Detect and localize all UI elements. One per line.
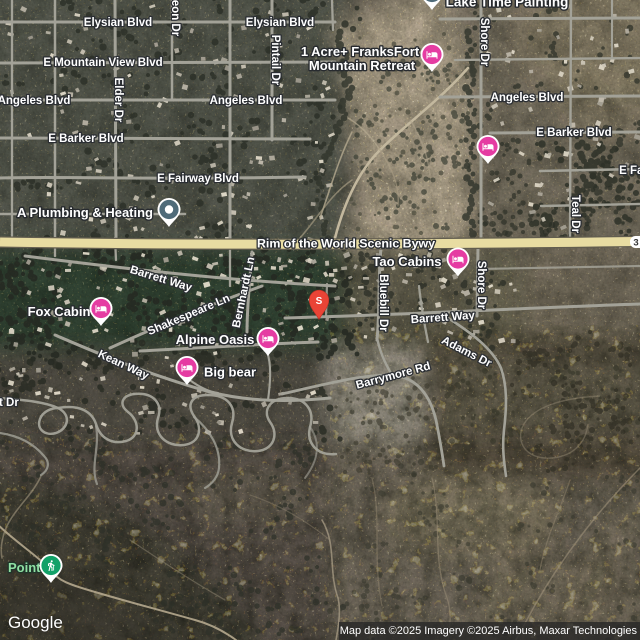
svg-text:Pintail Dr: Pintail Dr bbox=[269, 35, 281, 86]
svg-text:E Mountain View Blvd: E Mountain View Blvd bbox=[43, 57, 162, 69]
svg-text:Angeles Blvd: Angeles Blvd bbox=[210, 95, 283, 107]
svg-text:Angeles Blvd: Angeles Blvd bbox=[0, 95, 70, 107]
svg-text:Teal Dr: Teal Dr bbox=[569, 195, 581, 234]
svg-text:Elder Dr: Elder Dr bbox=[112, 78, 124, 123]
svg-text:A Plumbing & Heating: A Plumbing & Heating bbox=[17, 205, 153, 220]
svg-text:E Fairway Blvd: E Fairway Blvd bbox=[157, 173, 239, 185]
svg-text:Angeles Blvd: Angeles Blvd bbox=[491, 92, 564, 104]
svg-text:Rim of the World Scenic Bywy: Rim of the World Scenic Bywy bbox=[257, 237, 435, 251]
svg-text:Lake Time Painting: Lake Time Painting bbox=[446, 0, 569, 10]
svg-text:Tao Cabins: Tao Cabins bbox=[372, 254, 441, 269]
svg-text:eon Dr: eon Dr bbox=[169, 0, 181, 37]
svg-text:1 Acre+ FranksFort: 1 Acre+ FranksFort bbox=[301, 44, 420, 59]
svg-text:E Barker Blvd: E Barker Blvd bbox=[48, 133, 123, 145]
svg-text:Mountain Retreat: Mountain Retreat bbox=[309, 58, 416, 73]
svg-text:S: S bbox=[316, 296, 323, 307]
svg-text:Shore Dr: Shore Dr bbox=[478, 18, 490, 67]
svg-text:Point: Point bbox=[8, 560, 41, 575]
svg-text:t Dr: t Dr bbox=[0, 397, 19, 409]
svg-text:Fox Cabin: Fox Cabin bbox=[28, 304, 91, 319]
svg-text:Shore Dr: Shore Dr bbox=[475, 261, 487, 310]
svg-text:Alpine Oasis: Alpine Oasis bbox=[176, 332, 255, 347]
svg-text:Big bear: Big bear bbox=[204, 365, 256, 380]
svg-text:Elysian Blvd: Elysian Blvd bbox=[246, 17, 314, 29]
svg-text:3: 3 bbox=[633, 238, 638, 249]
svg-text:Elysian Blvd: Elysian Blvd bbox=[84, 17, 152, 29]
svg-text:Bluebill Dr: Bluebill Dr bbox=[377, 274, 389, 332]
svg-text:E Barker Blvd: E Barker Blvd bbox=[536, 127, 611, 139]
svg-text:E Fairway: E Fairway bbox=[619, 165, 640, 177]
